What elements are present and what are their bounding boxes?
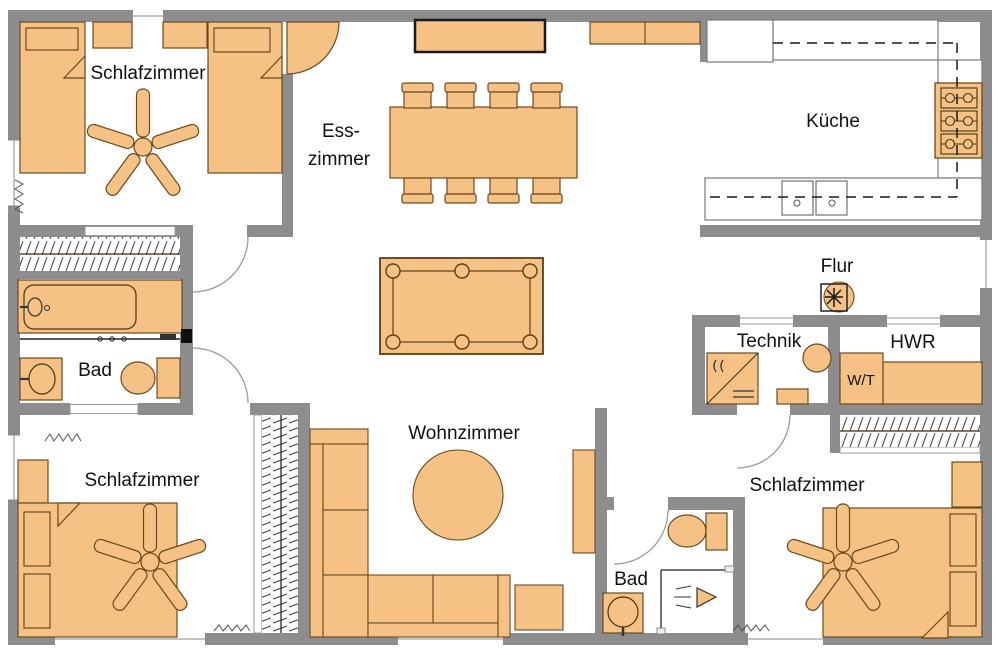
door-stop [181,329,192,343]
door-swing [193,237,248,292]
wardrobe-with-clothes [262,415,298,633]
dining-chair [488,83,519,92]
side-table [777,389,808,404]
dining-chair [404,178,431,194]
wall-hwr-bottom [832,403,992,415]
label-washer-dryer: W/T [847,372,875,389]
room-label-dining-line2: zimmer [308,149,371,170]
dining-chair [533,178,560,194]
dining-chair [490,178,517,194]
wall-bedroom3-top-a [692,403,737,415]
ventilation-mark [45,434,81,441]
wall-hwr-top-a [840,315,887,327]
room-label-utility-room: HWR [890,332,935,353]
dining-chair [447,178,474,194]
wall-bath2-right [733,497,745,633]
bath-left-fixtures [18,280,192,400]
rail-item [160,334,176,340]
dining-chair [404,92,431,108]
nightstand [163,22,207,48]
room-label-bedroom-bottom-right: Schlafzimmer [749,475,865,496]
wardrobe-with-clothes [840,415,980,447]
floor-plan-canvas: Schlafzimmer Ess- zimmer Küche Flur Tech… [0,0,1000,655]
door-swing [614,510,668,564]
toilet [668,513,727,550]
room-label-bath-bottom: Bad [614,569,648,590]
wall-bath2-top-a [600,497,614,510]
wall-kitchen-left-stub [700,22,707,62]
sideboard [590,22,700,44]
utility-counter [883,362,982,404]
bedroom1-furniture [20,22,282,198]
nightstand [93,22,132,48]
room-label-hall: Flur [821,256,854,277]
ventilation-mark [214,625,250,631]
washbasin [603,593,643,636]
billiard-table [380,258,543,354]
dining-furniture [390,20,700,203]
pillow [214,28,270,52]
wall-kitchen-bottom [700,225,992,237]
wall-bedroom2-top-a [8,403,70,415]
coffee-table [413,450,503,540]
room-label-dining-line1: Ess- [322,121,360,142]
dining-table [390,107,577,178]
nightstand [952,462,982,507]
wall-hwr-top-b [940,315,980,327]
wall-technik-left [692,315,705,415]
dining-chair [531,83,562,92]
wall-closet2-top [250,403,310,415]
window [133,10,163,22]
dining-chair [447,92,474,108]
window [8,140,20,206]
ceiling-fan [86,89,200,198]
wall-closet3-left [830,415,840,453]
pillow [950,514,976,566]
wall-bath2-top-b [668,497,733,510]
pillow [24,574,50,628]
pillow [950,572,976,626]
floor-plan: Schlafzimmer Ess- zimmer Küche Flur Tech… [0,0,1000,655]
plant [821,282,854,312]
living-furniture [310,429,595,637]
dining-chair [488,194,519,203]
door-swing-filled [287,22,339,74]
shower-head-icon [697,588,716,607]
room-label-bath-left: Bad [78,360,112,381]
tv-board [573,450,595,553]
shower [657,566,734,634]
kitchen-counter [773,20,938,60]
sliding-door [254,415,262,633]
room-label-bedroom-top-left: Schlafzimmer [90,63,206,84]
pillow [26,28,78,50]
wall-technik-top-b [793,315,832,327]
door-swing [737,415,790,468]
sliding-door [840,447,980,453]
room-label-bedroom-bottom-left: Schlafzimmer [84,470,200,491]
toilet [121,358,180,398]
room-label-living-room: Wohnzimmer [408,423,520,444]
wall-bedroom3-top-b [790,403,832,415]
bathtub [18,280,182,333]
heat-pump [707,353,758,404]
stove [935,83,982,158]
wall-bedroom2-top-b [138,403,193,415]
wall-closet2-right [298,415,310,637]
nightstand [18,460,48,503]
side-table [515,585,563,630]
dining-chair [531,194,562,203]
window [748,633,823,645]
wall-bedroom1-right [282,74,293,237]
sliding-door [85,227,175,236]
room-label-kitchen: Küche [806,111,860,132]
dining-chair [402,194,433,203]
dining-chair [445,194,476,203]
dining-chair [533,92,560,108]
wall-closet1-bath [20,271,180,279]
tall-cabinet [707,20,773,62]
wall-technik-top-a [692,315,740,327]
technik-fixtures [707,344,982,404]
single-bed [208,22,282,173]
dining-chair [402,83,433,92]
door-swing [193,348,248,403]
single-bed [20,22,85,173]
sideboard [415,20,545,52]
washbasin [20,358,62,400]
sliding-door [70,405,138,414]
dining-chair [445,83,476,92]
wall-bedroom1-bottom-stub [247,225,293,237]
window [980,240,992,288]
wardrobe-with-clothes [20,237,180,271]
room-label-tech-room: Technik [737,331,802,352]
boiler [803,344,831,372]
dining-chair [490,92,517,108]
pillow [24,512,50,566]
